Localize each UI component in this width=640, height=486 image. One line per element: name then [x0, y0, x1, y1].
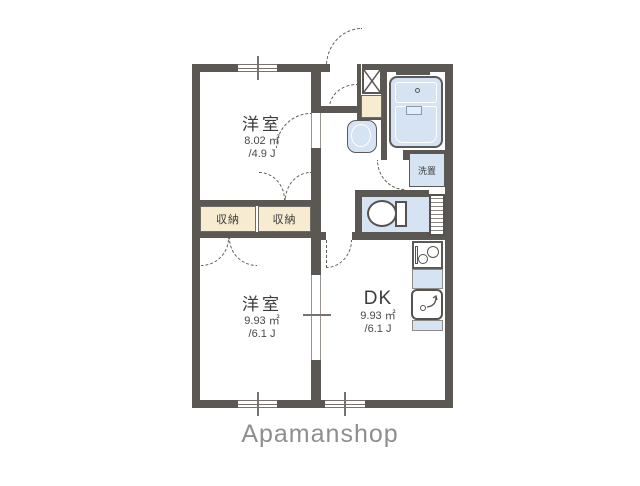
- room-name: 洋室: [242, 110, 282, 135]
- entrance-door-arc: [326, 28, 362, 66]
- wall: [355, 190, 362, 232]
- faucet-dot: [415, 88, 420, 93]
- toilet-tank: [395, 201, 407, 227]
- window-center-tick: [257, 56, 259, 80]
- closet-right-label: 収納: [273, 211, 297, 227]
- kitchen-counter: [412, 269, 443, 289]
- laundry-space-label: 洗置: [418, 164, 436, 177]
- room-name: 洋室: [242, 290, 282, 315]
- sliding-door-opening: [311, 275, 321, 360]
- room-area-jo: /6.1 J: [365, 323, 392, 336]
- washbasin-bowl: [351, 124, 371, 147]
- wall: [355, 190, 429, 197]
- room-area-jo: /6.1 J: [249, 328, 276, 341]
- washbasin: [347, 120, 377, 153]
- closet-right-door-arc: [285, 172, 311, 200]
- room-name: DK: [364, 288, 392, 310]
- room-bedroom-top: 洋室 8.02 ㎡ /4.9 J: [212, 110, 312, 161]
- closet-right-door-arc: [259, 172, 285, 200]
- brand-logo-text: Apamanshop: [0, 420, 640, 449]
- stove: [412, 241, 443, 269]
- bathtub-handle: [406, 106, 422, 115]
- shoe-cabinet: [361, 95, 382, 118]
- window-center-tick: [257, 392, 259, 416]
- room-area-m2: 9.93 ㎡: [360, 310, 395, 323]
- closet-left-label: 収納: [216, 211, 240, 227]
- pipe-space: [429, 194, 445, 236]
- bath-door-arc: [377, 160, 405, 190]
- wall: [321, 232, 326, 240]
- dk-door-arc: [326, 240, 352, 268]
- wall: [311, 360, 321, 400]
- cross-mark-icon: [364, 70, 380, 92]
- wall: [381, 150, 387, 160]
- wall: [311, 64, 321, 113]
- room-area-m2: 8.02 ㎡: [244, 135, 279, 148]
- burner: [418, 254, 428, 264]
- room-dk: DK 9.93 ㎡ /6.1 J: [330, 288, 426, 336]
- drain-arrow-icon: [425, 295, 439, 309]
- toilet: [367, 200, 397, 227]
- washing-machine-pan: [362, 68, 382, 94]
- wall: [192, 64, 200, 408]
- wall: [192, 400, 453, 408]
- closet-left-door-arc: [229, 238, 257, 266]
- hall-door-arc: [329, 84, 357, 108]
- bathtub: [389, 76, 443, 148]
- closet-left: 収納: [200, 206, 256, 232]
- closet-right: 収納: [258, 206, 311, 232]
- room-area-m2: 9.93 ㎡: [244, 315, 279, 328]
- wall: [311, 148, 321, 275]
- bath-shelf: [396, 70, 430, 75]
- window-center-tick: [344, 392, 346, 416]
- floor-plan-page: 収納 収納 洗置: [0, 0, 640, 486]
- room-bedroom-bottom: 洋室 9.93 ㎡ /6.1 J: [212, 290, 312, 341]
- stove-vent: [415, 246, 418, 264]
- closet-left-door-arc: [201, 238, 229, 266]
- laundry-space: 洗置: [409, 153, 445, 187]
- door-opening: [311, 113, 321, 148]
- room-area-jo: /4.9 J: [249, 148, 276, 161]
- burner: [427, 246, 439, 258]
